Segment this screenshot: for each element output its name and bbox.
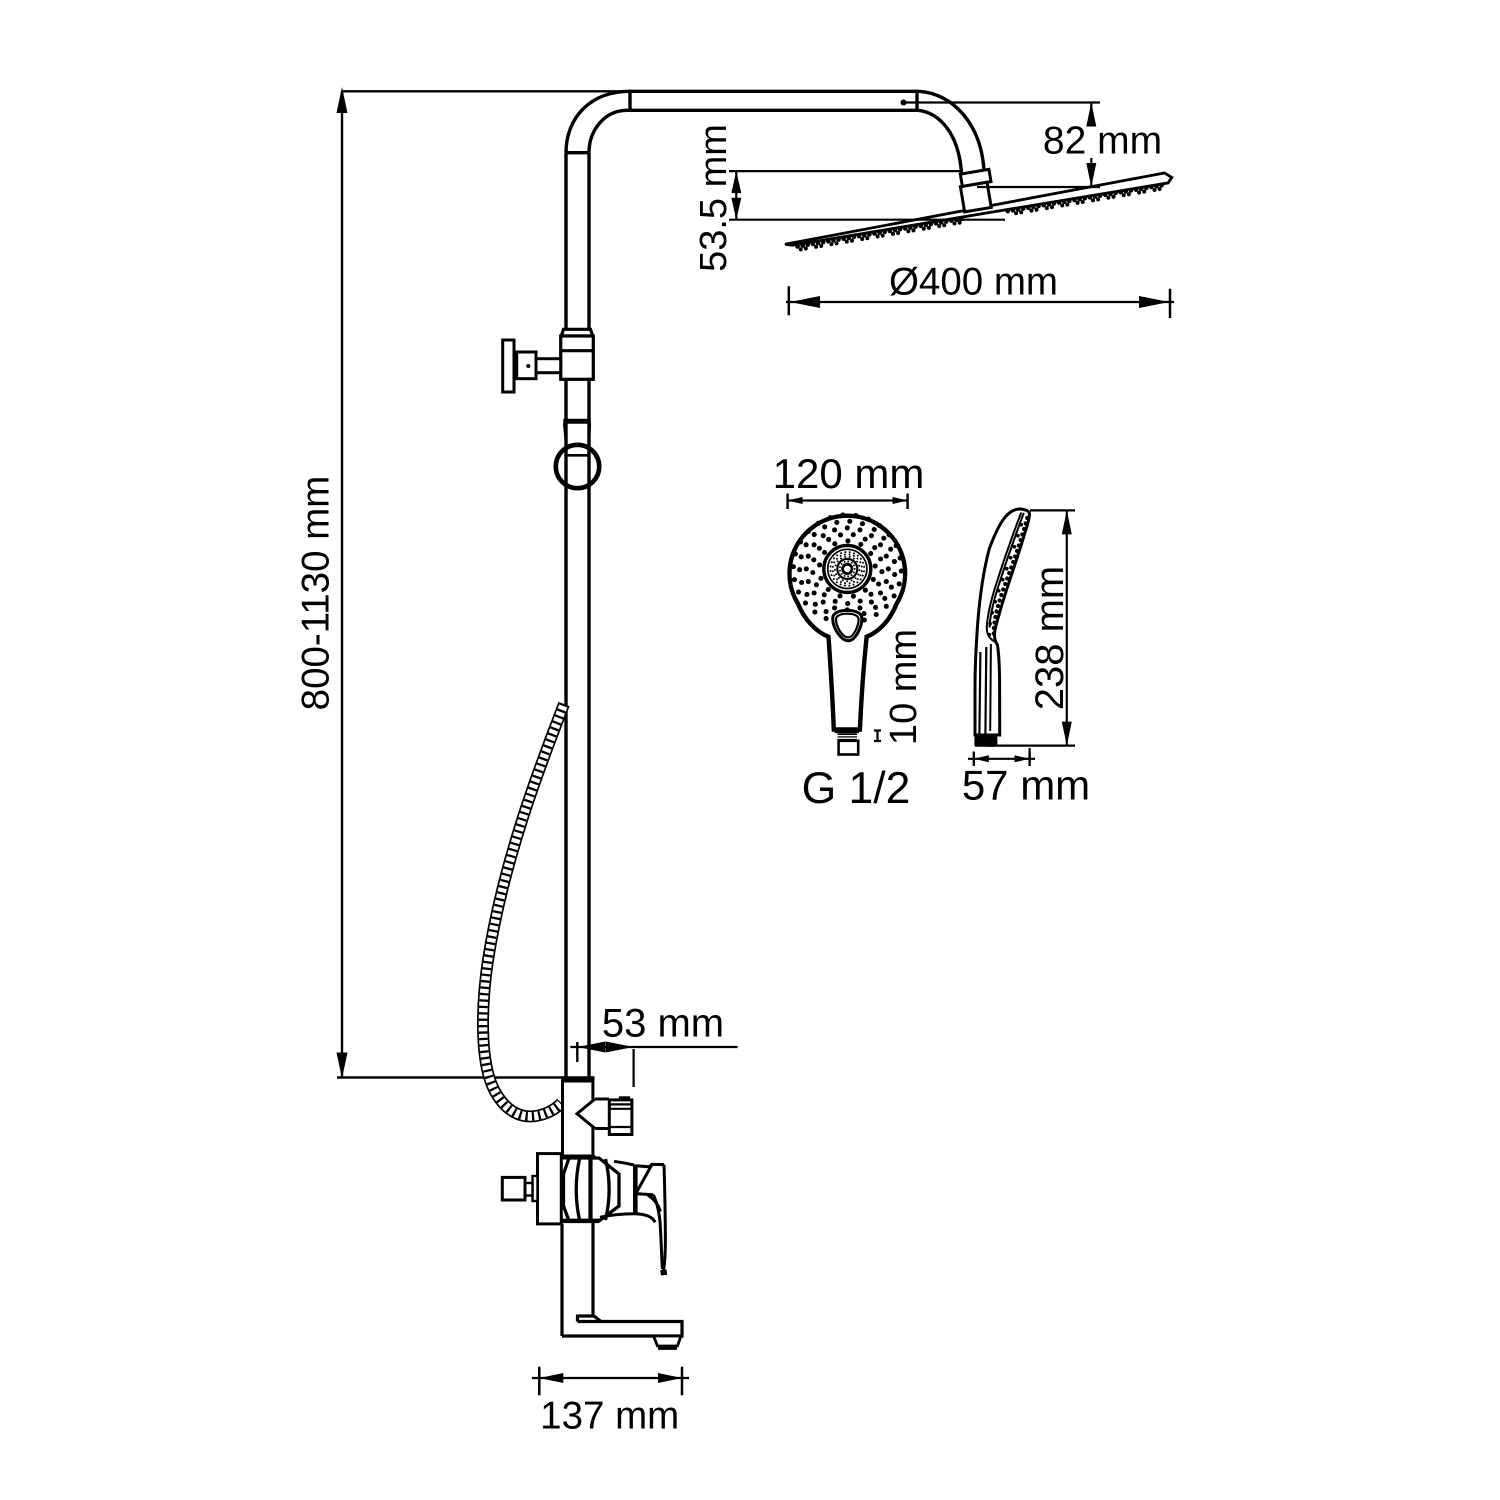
svg-text:Ø400 mm: Ø400 mm — [889, 261, 1058, 304]
svg-text:G 1/2: G 1/2 — [802, 764, 911, 813]
svg-text:10 mm: 10 mm — [883, 629, 925, 745]
svg-text:57 mm: 57 mm — [962, 762, 1090, 809]
svg-text:800-1130 mm: 800-1130 mm — [295, 476, 338, 711]
svg-text:53 mm: 53 mm — [602, 1001, 724, 1045]
svg-text:238 mm: 238 mm — [1028, 566, 1072, 711]
svg-text:53.5 mm: 53.5 mm — [693, 124, 735, 272]
svg-text:137 mm: 137 mm — [540, 1395, 679, 1438]
svg-text:82 mm: 82 mm — [1043, 119, 1162, 162]
svg-text:120 mm: 120 mm — [773, 450, 925, 497]
